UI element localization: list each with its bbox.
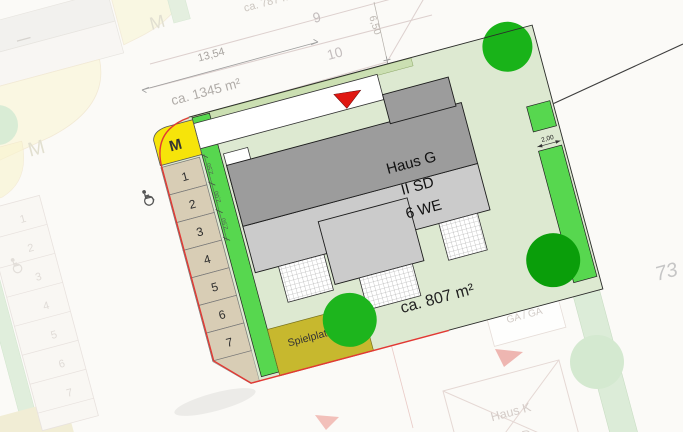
- site-plan-page: M M 9 10 ca. 787 m² 13,54 ca. 1345 m² 6,…: [0, 0, 683, 432]
- faded-tree: [570, 335, 624, 389]
- site-plan-drawing: M M 9 10 ca. 787 m² 13,54 ca. 1345 m² 6,…: [0, 0, 683, 432]
